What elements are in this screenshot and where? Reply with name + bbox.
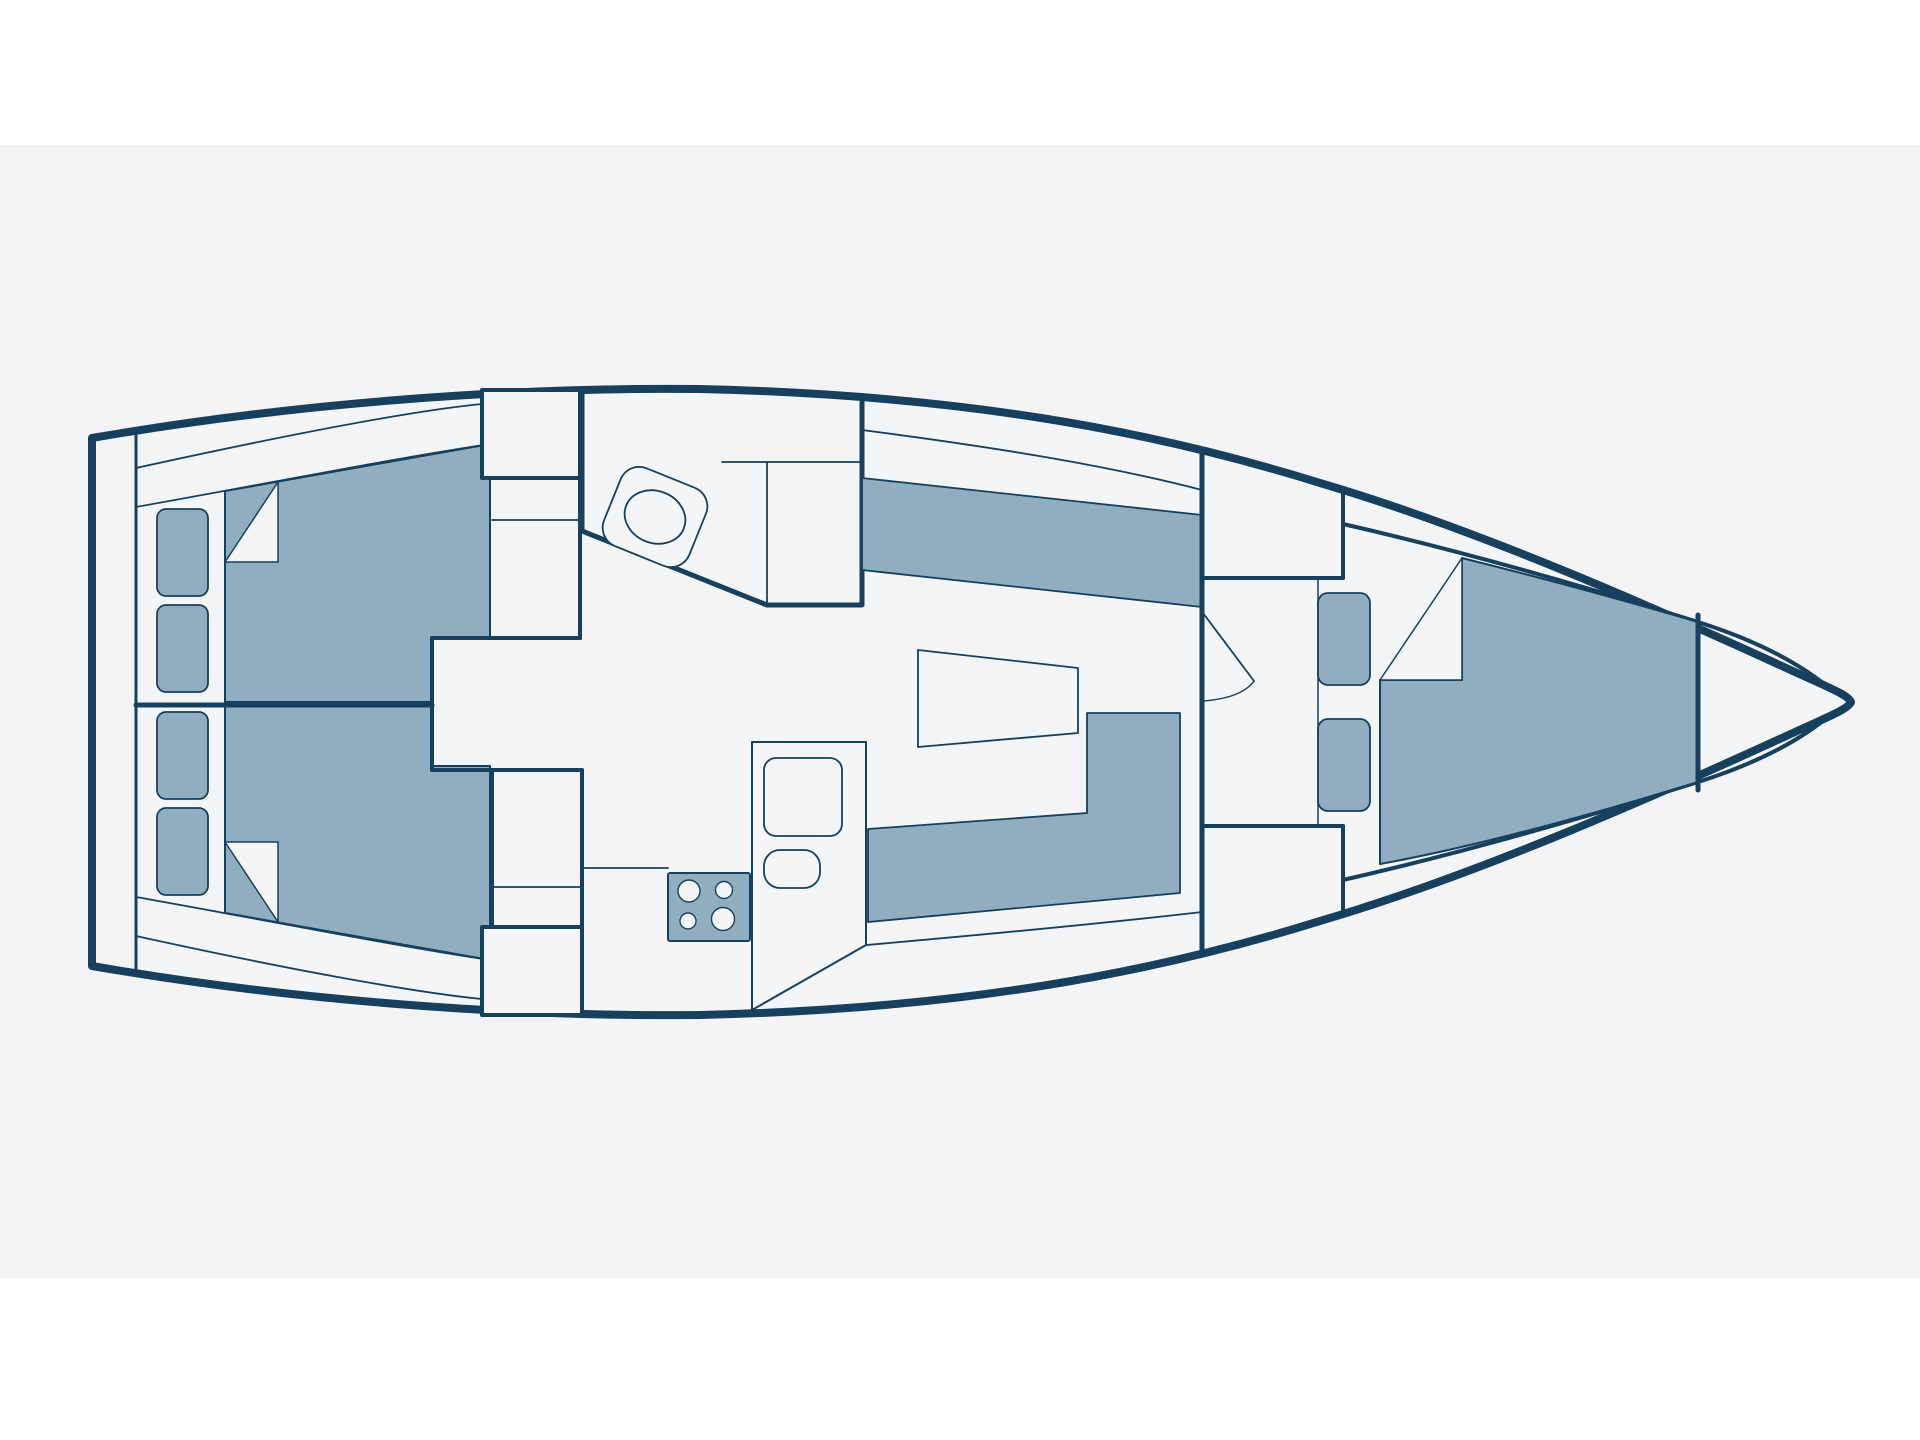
stove-burner-4 xyxy=(712,908,735,931)
stove-burner-1 xyxy=(678,880,700,902)
fwd-seat-cushion-1 xyxy=(1318,593,1370,685)
shelf-cushion-port-2 xyxy=(157,605,208,692)
galley-aft-locker xyxy=(482,927,582,1015)
companionway-top-box xyxy=(482,390,580,478)
galley-aft-counter xyxy=(492,770,582,927)
stove-burner-2 xyxy=(716,882,733,899)
stove-burner-3 xyxy=(680,913,696,929)
galley-fridge xyxy=(764,758,842,836)
galley-sink xyxy=(764,850,820,888)
floor-plan-shapes xyxy=(92,389,1851,1015)
page xyxy=(0,0,1920,1440)
shelf-cushion-port-1 xyxy=(157,509,208,596)
floor-plan-svg xyxy=(0,0,1920,1440)
fwd-seat-cushion-2 xyxy=(1318,719,1370,811)
shelf-cushion-stbd-1 xyxy=(157,712,208,799)
shelf-cushion-stbd-2 xyxy=(157,808,208,895)
salon-table xyxy=(918,650,1078,747)
